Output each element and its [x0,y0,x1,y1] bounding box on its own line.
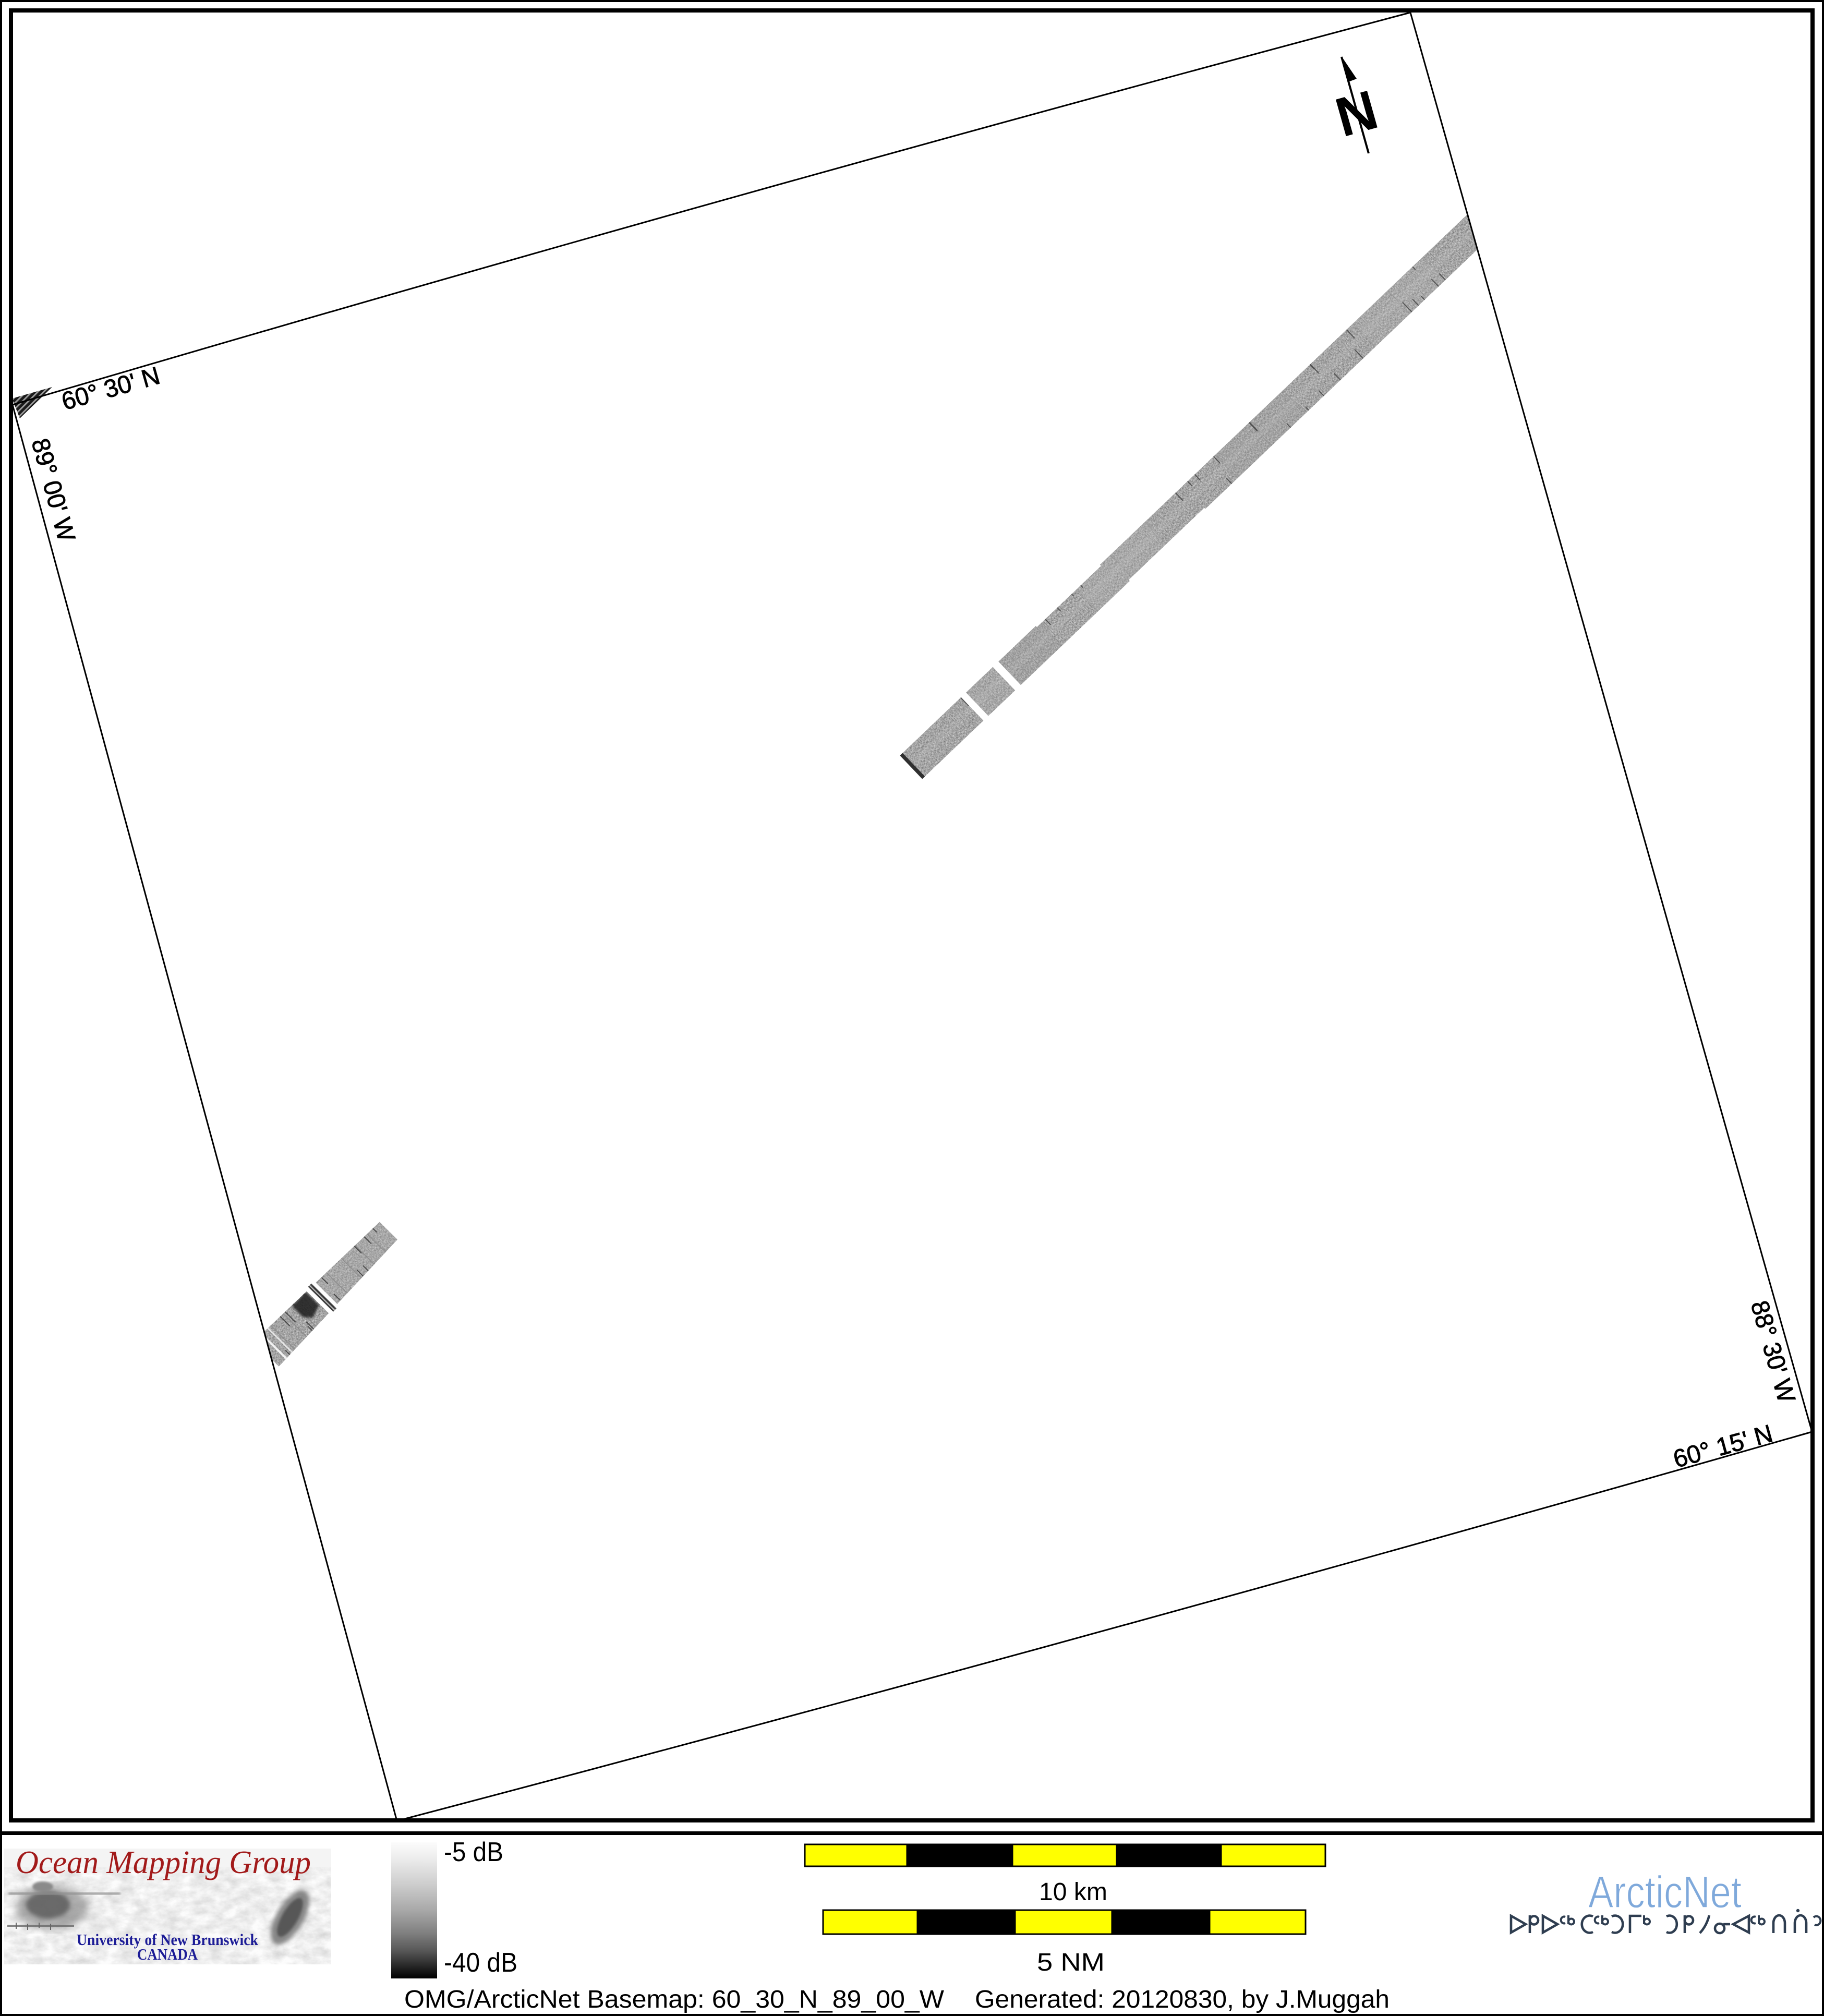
svg-text:Generated: 20120830, by J.Mugg: Generated: 20120830, by J.Muggah [975,1986,1390,2013]
svg-text:5 NM: 5 NM [1037,1949,1105,1976]
svg-text:Ocean Mapping Group: Ocean Mapping Group [16,1845,311,1880]
svg-text:OMG/ArcticNet Basemap: 60_30_N: OMG/ArcticNet Basemap: 60_30_N_89_00_W [404,1986,945,2013]
svg-text:10 km: 10 km [1039,1878,1107,1906]
svg-text:-40 dB: -40 dB [444,1948,517,1978]
svg-text:CANADA: CANADA [137,1945,198,1963]
svg-text:-5 dB: -5 dB [444,1837,503,1867]
svg-text:ArcticNet: ArcticNet [1588,1867,1742,1917]
